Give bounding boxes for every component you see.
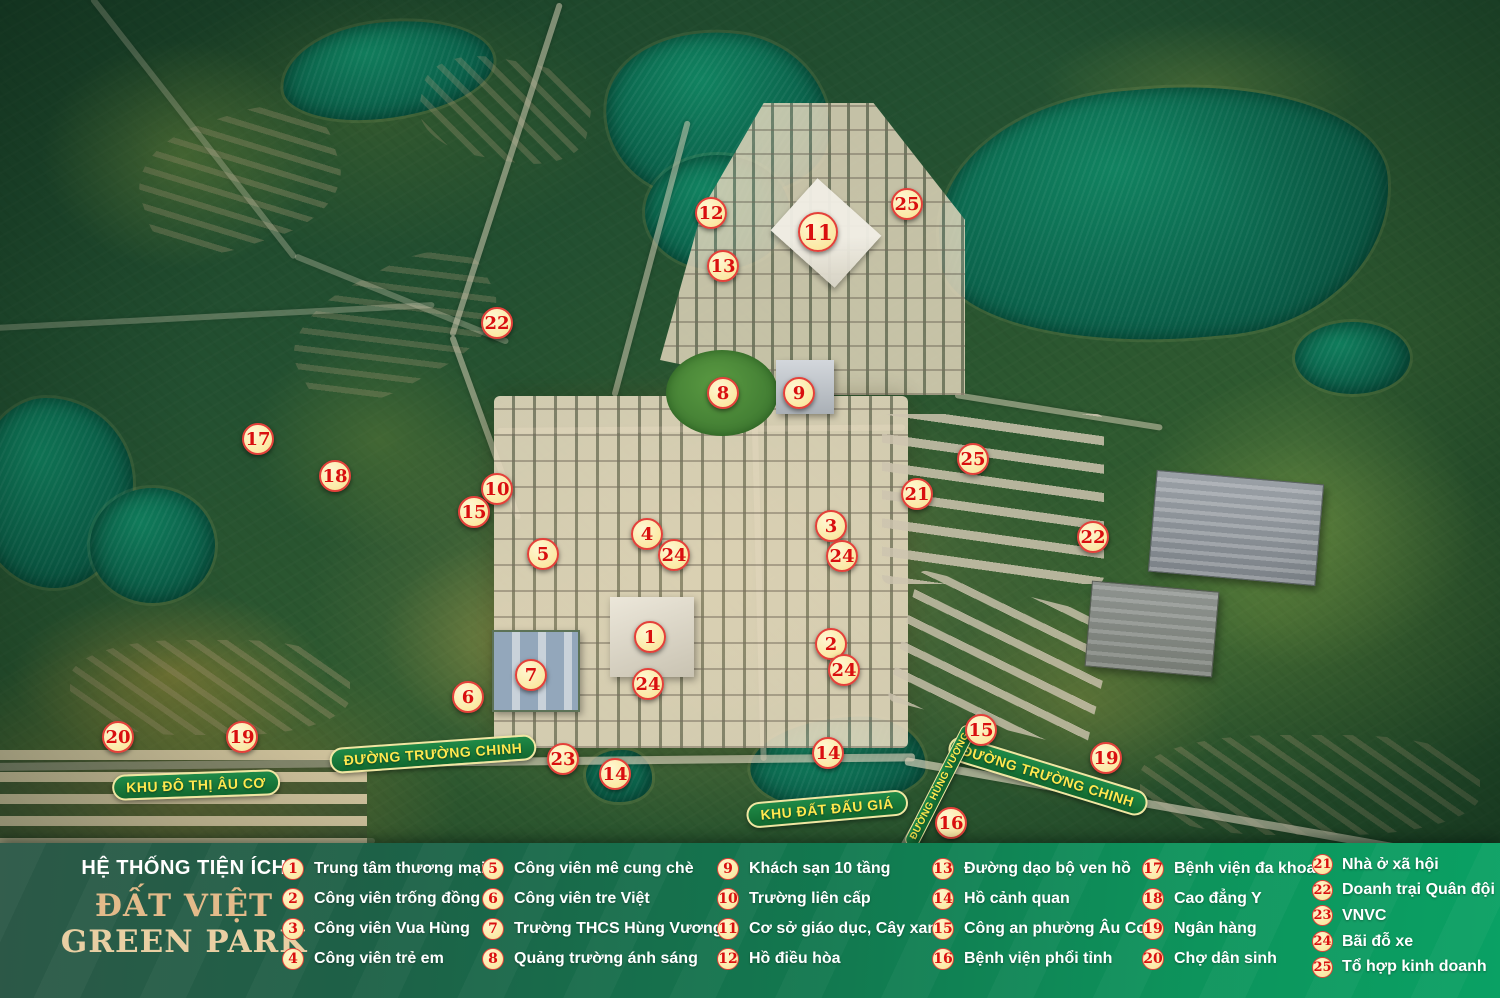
map-marker-24: 24 bbox=[828, 654, 860, 686]
project-name-line1: ĐẤT VIỆT bbox=[55, 888, 313, 924]
legend-item-number: 12 bbox=[717, 948, 739, 970]
legend-item-24: 24Bãi đỗ xe bbox=[1312, 929, 1495, 955]
map-marker-24: 24 bbox=[658, 539, 690, 571]
legend-item-number: 1 bbox=[282, 858, 304, 880]
legend-column-6: 21Nhà ở xã hội22Doanh trại Quân đội23VNV… bbox=[1312, 852, 1495, 980]
map-marker-4: 4 bbox=[631, 518, 663, 550]
legend-item-number: 22 bbox=[1312, 880, 1333, 901]
legend-item-label: Trường liên cấp bbox=[749, 890, 871, 908]
facility-building bbox=[1084, 581, 1219, 678]
map-marker-23: 23 bbox=[547, 743, 579, 775]
legend-item-label: Bệnh viện phổi tỉnh bbox=[964, 950, 1112, 968]
housing-rows-southwest bbox=[0, 750, 367, 848]
map-marker-12: 12 bbox=[695, 197, 727, 229]
lake bbox=[1295, 322, 1410, 394]
legend-column-1: 1Trung tâm thương mại2Công viên trống đồ… bbox=[282, 854, 485, 974]
legend-item-label: Chợ dân sinh bbox=[1174, 950, 1277, 968]
legend-title-block: HỆ THỐNG TIỆN ÍCH ĐẤT VIỆT GREEN PARK bbox=[55, 857, 313, 960]
legend-item-25: 25Tổ hợp kinh doanh bbox=[1312, 954, 1495, 980]
legend-column-5: 17Bệnh viện đa khoa18Cao đẳng Y19Ngân hà… bbox=[1142, 854, 1315, 974]
legend-item-5: 5Công viên mê cung chè bbox=[482, 854, 723, 884]
legend-item-8: 8Quảng trường ánh sáng bbox=[482, 944, 723, 974]
legend-bar: HỆ THỐNG TIỆN ÍCH ĐẤT VIỆT GREEN PARK 1T… bbox=[0, 843, 1500, 998]
map-marker-1: 1 bbox=[634, 621, 666, 653]
legend-column-4: 13Đường dạo bộ ven hồ14Hồ cảnh quan15Côn… bbox=[932, 854, 1148, 974]
masterplan-poster: KHU ĐÔ THỊ ÂU CƠĐƯỜNG TRƯỜNG CHINHKHU ĐẤ… bbox=[0, 0, 1500, 998]
legend-item-18: 18Cao đẳng Y bbox=[1142, 884, 1315, 914]
legend-item-number: 8 bbox=[482, 948, 504, 970]
legend-item-number: 2 bbox=[282, 888, 304, 910]
map-marker-7: 7 bbox=[515, 659, 547, 691]
legend-item-number: 15 bbox=[932, 918, 954, 940]
legend-item-label: Bệnh viện đa khoa bbox=[1174, 860, 1315, 878]
legend-item-label: Doanh trại Quân đội bbox=[1342, 881, 1495, 899]
military-facility-building bbox=[1148, 470, 1324, 586]
legend-item-11: 11Cơ sở giáo dục, Cây xanh bbox=[717, 914, 947, 944]
legend-item-label: Công viên Vua Hùng bbox=[314, 920, 470, 938]
legend-item-label: Tổ hợp kinh doanh bbox=[1342, 958, 1487, 976]
map-marker-19: 19 bbox=[226, 721, 258, 753]
legend-item-label: Trung tâm thương mại bbox=[314, 860, 485, 878]
legend-item-number: 13 bbox=[932, 858, 954, 880]
legend-item-12: 12Hồ điều hòa bbox=[717, 944, 947, 974]
legend-item-4: 4Công viên trẻ em bbox=[282, 944, 485, 974]
legend-column-3: 9Khách sạn 10 tầng10Trường liên cấp11Cơ … bbox=[717, 854, 947, 974]
lake bbox=[90, 488, 215, 603]
legend-item-16: 16Bệnh viện phổi tỉnh bbox=[932, 944, 1148, 974]
legend-item-3: 3Công viên Vua Hùng bbox=[282, 914, 485, 944]
legend-item-19: 19Ngân hàng bbox=[1142, 914, 1315, 944]
legend-item-21: 21Nhà ở xã hội bbox=[1312, 852, 1495, 878]
legend-item-1: 1Trung tâm thương mại bbox=[282, 854, 485, 884]
legend-item-label: Công viên trẻ em bbox=[314, 950, 444, 968]
legend-item-number: 3 bbox=[282, 918, 304, 940]
map-marker-24: 24 bbox=[826, 540, 858, 572]
legend-item-7: 7Trường THCS Hùng Vương bbox=[482, 914, 723, 944]
legend-item-20: 20Chợ dân sinh bbox=[1142, 944, 1315, 974]
map-marker-25: 25 bbox=[957, 443, 989, 475]
legend-item-label: Trường THCS Hùng Vương bbox=[514, 920, 723, 938]
legend-item-number: 20 bbox=[1142, 948, 1164, 970]
legend-item-9: 9Khách sạn 10 tầng bbox=[717, 854, 947, 884]
map-marker-20: 20 bbox=[102, 721, 134, 753]
map-marker-22: 22 bbox=[481, 307, 513, 339]
map-marker-16: 16 bbox=[935, 807, 967, 839]
legend-item-number: 17 bbox=[1142, 858, 1164, 880]
map-marker-25: 25 bbox=[891, 188, 923, 220]
legend-title: HỆ THỐNG TIỆN ÍCH bbox=[55, 857, 313, 880]
legend-item-label: VNVC bbox=[1342, 907, 1386, 925]
map-marker-15: 15 bbox=[458, 496, 490, 528]
village-cluster bbox=[70, 640, 350, 735]
legend-item-number: 25 bbox=[1312, 957, 1333, 978]
legend-item-number: 10 bbox=[717, 888, 739, 910]
legend-item-number: 7 bbox=[482, 918, 504, 940]
project-name-line2: GREEN PARK bbox=[55, 924, 313, 960]
map-marker-14: 14 bbox=[599, 758, 631, 790]
legend-column-2: 5Công viên mê cung chè6Công viên tre Việ… bbox=[482, 854, 723, 974]
legend-item-17: 17Bệnh viện đa khoa bbox=[1142, 854, 1315, 884]
legend-item-number: 24 bbox=[1312, 931, 1333, 952]
legend-item-10: 10Trường liên cấp bbox=[717, 884, 947, 914]
legend-item-label: Cao đẳng Y bbox=[1174, 890, 1262, 908]
map-marker-3: 3 bbox=[815, 510, 847, 542]
legend-item-label: Khách sạn 10 tầng bbox=[749, 860, 890, 878]
legend-item-label: Bãi đỗ xe bbox=[1342, 933, 1413, 951]
map-marker-15: 15 bbox=[965, 714, 997, 746]
legend-item-label: Hồ điều hòa bbox=[749, 950, 841, 968]
map-marker-6: 6 bbox=[452, 681, 484, 713]
legend-item-label: Nhà ở xã hội bbox=[1342, 856, 1439, 874]
legend-item-number: 11 bbox=[717, 918, 739, 940]
legend-item-label: Công viên trống đồng bbox=[314, 890, 480, 908]
legend-item-label: Công viên mê cung chè bbox=[514, 860, 694, 878]
map-marker-10: 10 bbox=[481, 473, 513, 505]
map-marker-19: 19 bbox=[1090, 742, 1122, 774]
legend-item-number: 16 bbox=[932, 948, 954, 970]
legend-item-label: Hồ cảnh quan bbox=[964, 890, 1070, 908]
map-marker-18: 18 bbox=[319, 460, 351, 492]
legend-item-number: 5 bbox=[482, 858, 504, 880]
map-marker-13: 13 bbox=[707, 250, 739, 282]
map-marker-22: 22 bbox=[1077, 521, 1109, 553]
legend-item-label: Công an phường Âu Cơ bbox=[964, 920, 1148, 938]
map-marker-5: 5 bbox=[527, 538, 559, 570]
legend-item-label: Quảng trường ánh sáng bbox=[514, 950, 698, 968]
legend-item-number: 4 bbox=[282, 948, 304, 970]
map-marker-14: 14 bbox=[812, 737, 844, 769]
legend-item-number: 14 bbox=[932, 888, 954, 910]
legend-item-label: Cơ sở giáo dục, Cây xanh bbox=[749, 920, 947, 938]
legend-item-23: 23VNVC bbox=[1312, 903, 1495, 929]
legend-item-number: 21 bbox=[1312, 854, 1333, 875]
legend-item-number: 19 bbox=[1142, 918, 1164, 940]
map-marker-9: 9 bbox=[783, 377, 815, 409]
legend-item-number: 9 bbox=[717, 858, 739, 880]
map-marker-17: 17 bbox=[242, 423, 274, 455]
legend-item-6: 6Công viên tre Việt bbox=[482, 884, 723, 914]
legend-item-2: 2Công viên trống đồng bbox=[282, 884, 485, 914]
legend-item-number: 18 bbox=[1142, 888, 1164, 910]
legend-item-15: 15Công an phường Âu Cơ bbox=[932, 914, 1148, 944]
legend-item-22: 22Doanh trại Quân đội bbox=[1312, 878, 1495, 904]
map-marker-8: 8 bbox=[707, 377, 739, 409]
map-marker-11: 11 bbox=[798, 212, 838, 252]
legend-item-label: Ngân hàng bbox=[1174, 920, 1257, 938]
legend-item-14: 14Hồ cảnh quan bbox=[932, 884, 1148, 914]
legend-item-label: Đường dạo bộ ven hồ bbox=[964, 860, 1131, 878]
legend-item-13: 13Đường dạo bộ ven hồ bbox=[932, 854, 1148, 884]
legend-item-number: 6 bbox=[482, 888, 504, 910]
legend-item-number: 23 bbox=[1312, 905, 1333, 926]
map-marker-24: 24 bbox=[632, 668, 664, 700]
village-cluster bbox=[1140, 735, 1480, 835]
legend-item-label: Công viên tre Việt bbox=[514, 890, 650, 908]
map-marker-21: 21 bbox=[901, 478, 933, 510]
